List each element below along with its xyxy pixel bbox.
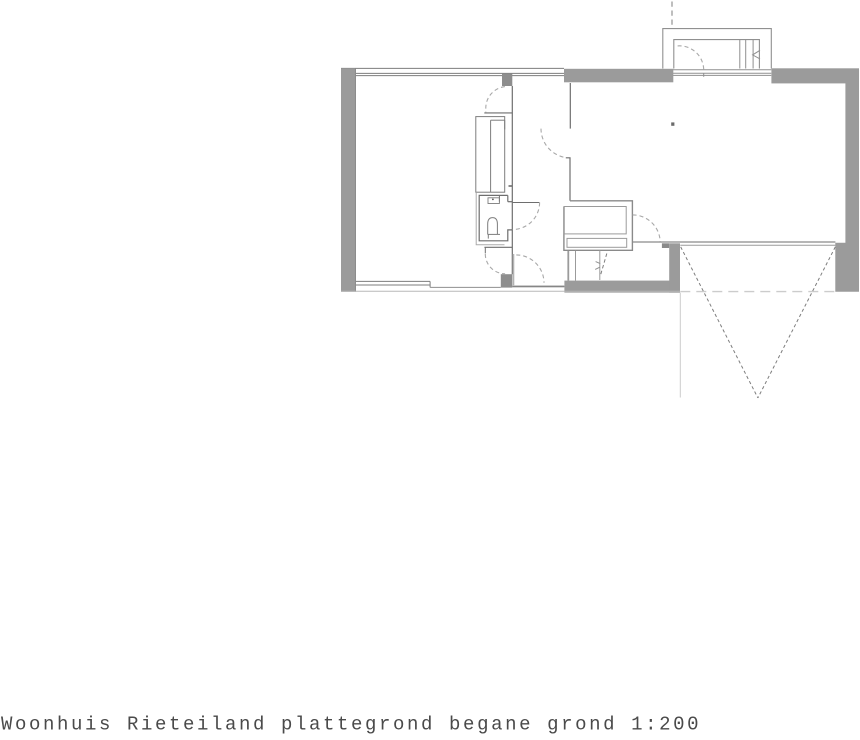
svg-text:Woonhuis Rieteiland plattegron: Woonhuis Rieteiland plattegrond begane g… (1, 714, 701, 736)
